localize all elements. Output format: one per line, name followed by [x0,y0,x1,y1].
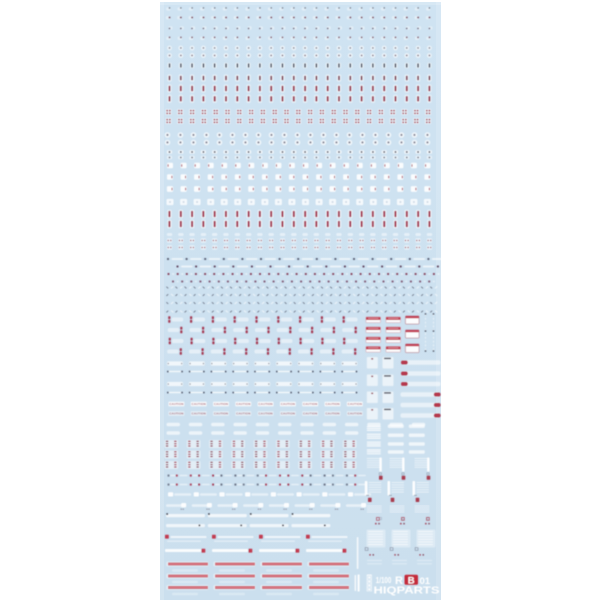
svg-text:CAUTION: CAUTION [214,402,228,406]
svg-text:CAUTION: CAUTION [236,402,250,406]
svg-text:CAUTION: CAUTION [258,412,272,416]
svg-text:CAUTION: CAUTION [258,402,272,406]
svg-text:CAUTION: CAUTION [192,402,206,406]
svg-text:CAUTION: CAUTION [281,402,295,406]
svg-text:CAUTION: CAUTION [325,402,339,406]
svg-text:CAUTION: CAUTION [192,412,206,416]
svg-text:CAUTION: CAUTION [236,412,250,416]
svg-text:CAUTION: CAUTION [214,412,228,416]
svg-text:HIQPARTS: HIQPARTS [374,585,440,596]
svg-text:CAUTION: CAUTION [348,412,362,416]
svg-text:CAUTION: CAUTION [303,402,317,406]
svg-text:CAUTION: CAUTION [325,412,339,416]
svg-text:CAUTION: CAUTION [169,412,183,416]
svg-text:CAUTION: CAUTION [303,412,317,416]
svg-text:CAUTION: CAUTION [169,402,183,406]
svg-text:CAUTION: CAUTION [281,412,295,416]
svg-text:1/100: 1/100 [376,576,392,585]
svg-text:CAUTION: CAUTION [348,402,362,406]
